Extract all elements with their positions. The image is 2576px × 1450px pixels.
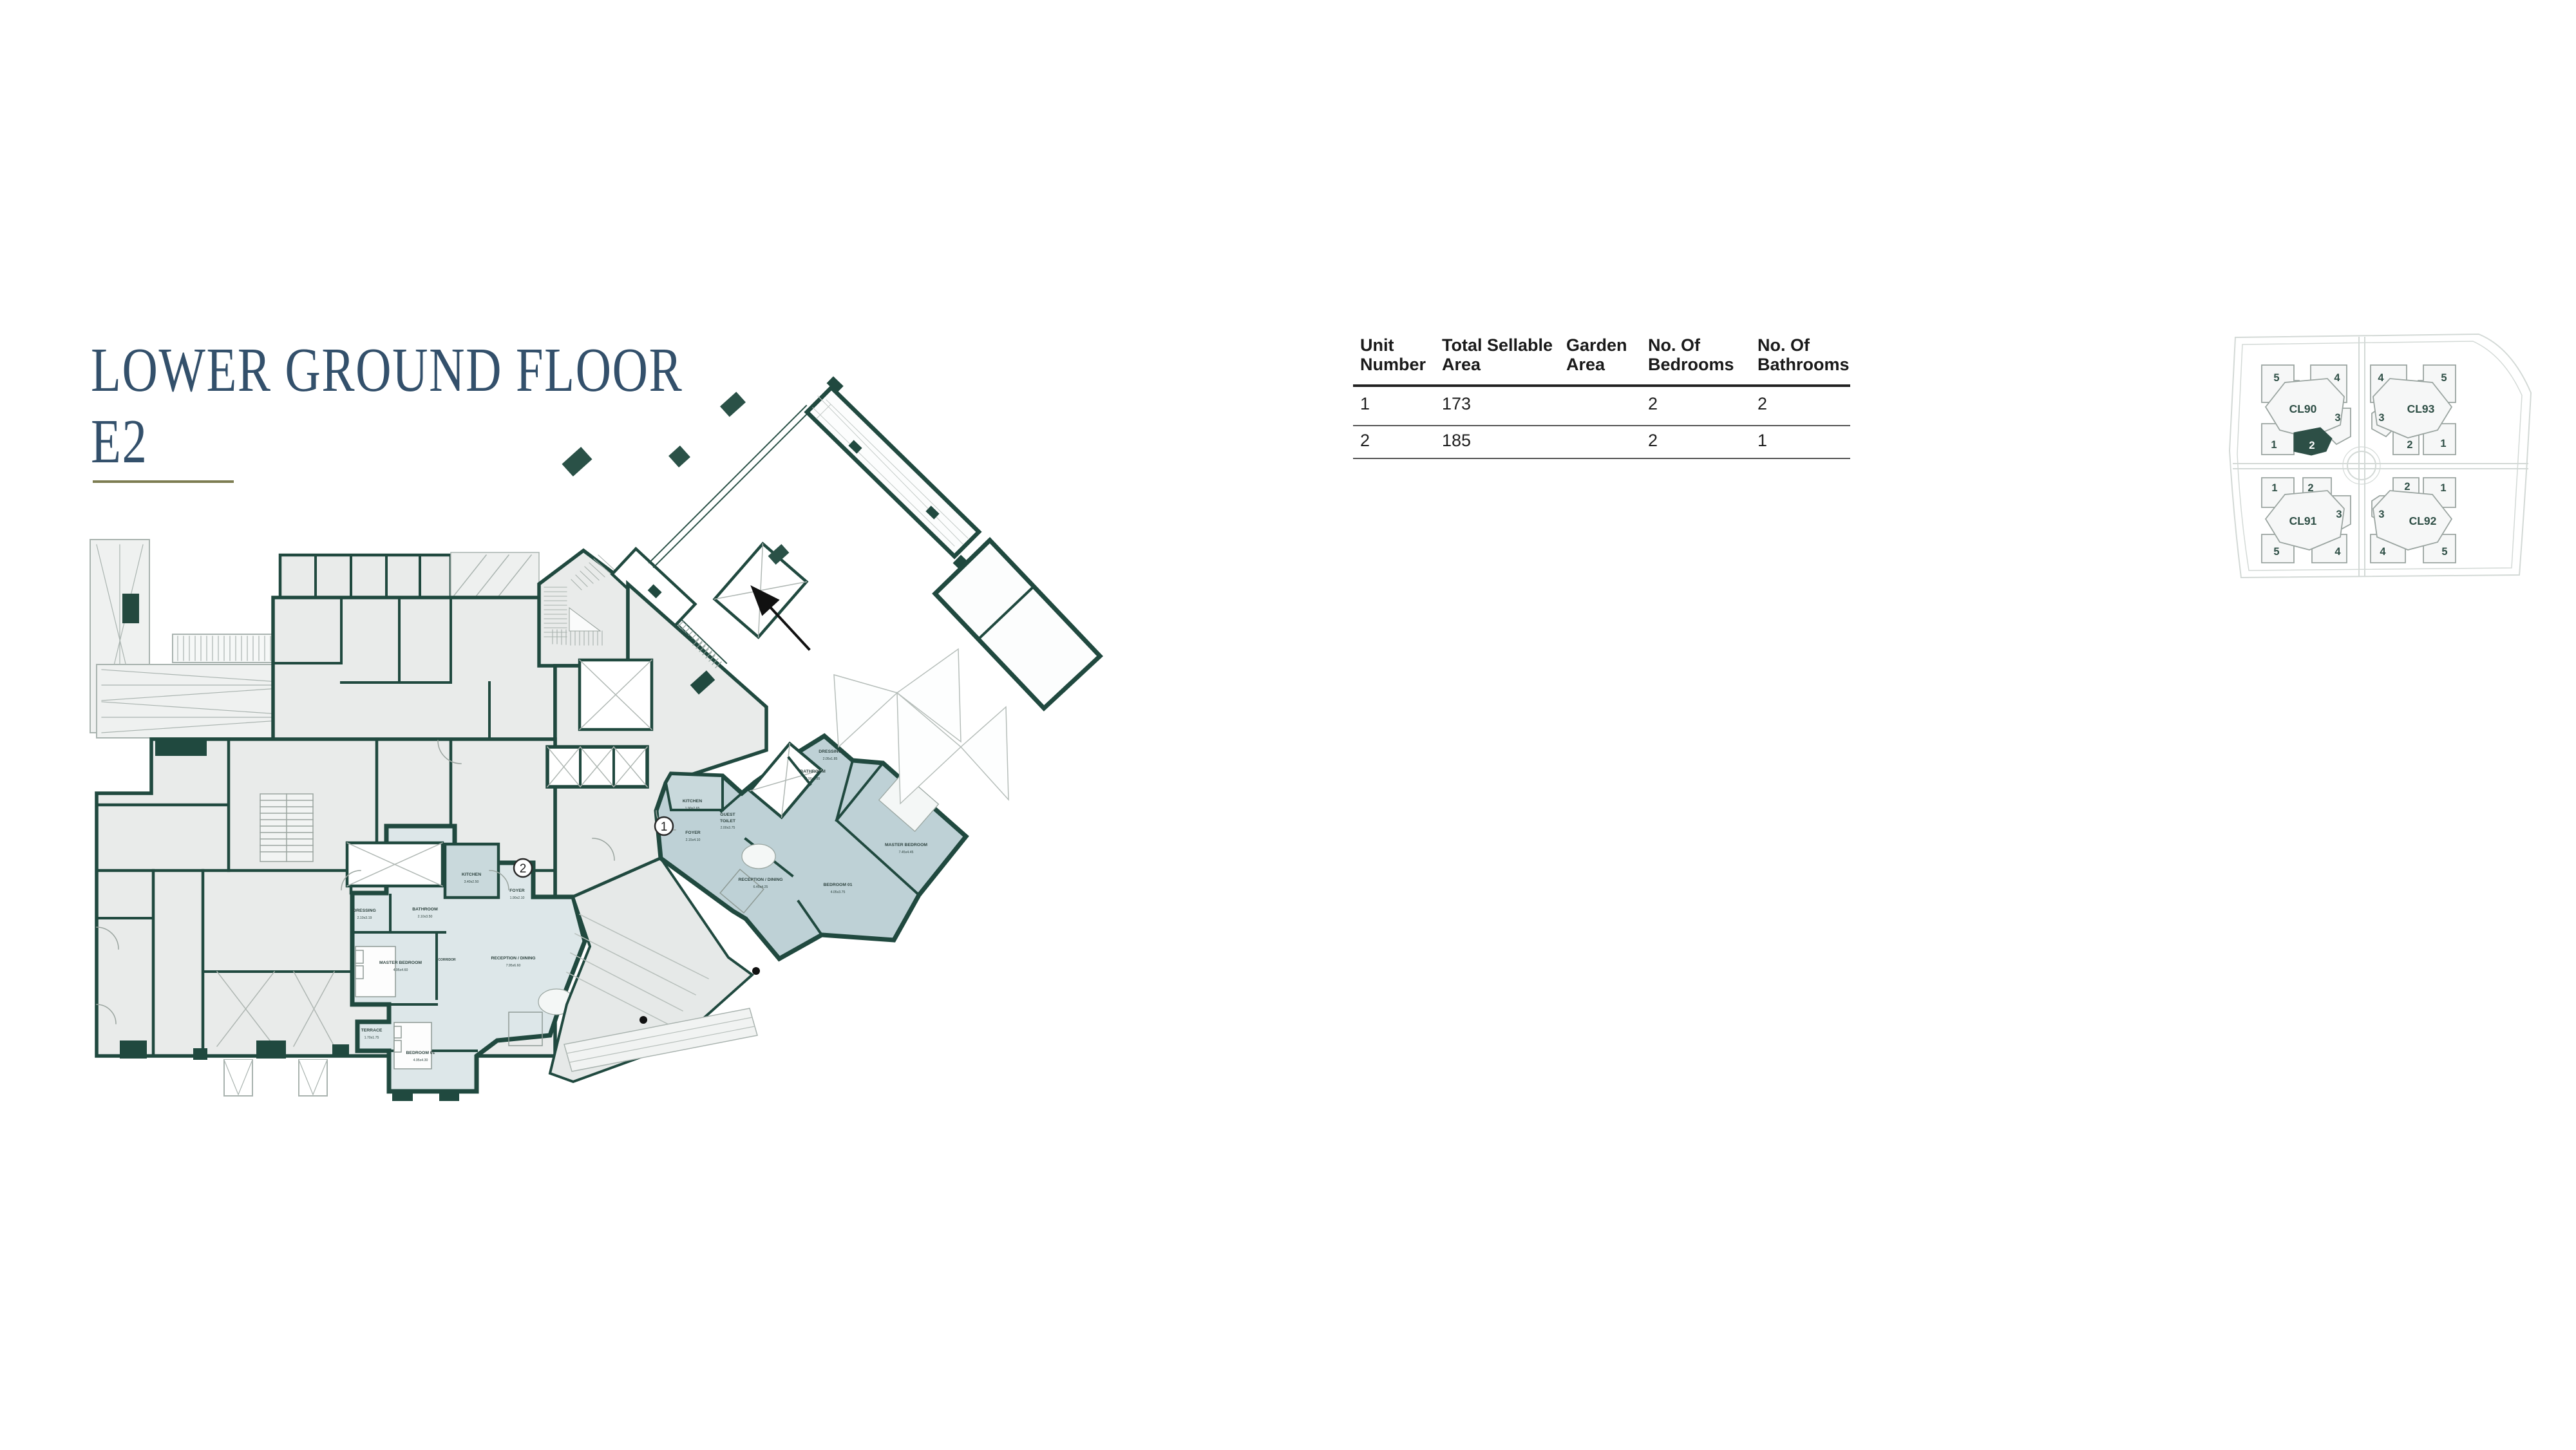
svg-text:5: 5 [2273, 372, 2279, 384]
svg-text:1: 1 [2271, 482, 2277, 494]
svg-text:TOILET: TOILET [720, 819, 736, 824]
svg-text:5: 5 [2273, 546, 2279, 558]
svg-text:FOYER: FOYER [509, 889, 525, 893]
svg-text:2.10x3.50: 2.10x3.50 [418, 915, 433, 919]
svg-text:2.15x4.10: 2.15x4.10 [686, 838, 701, 842]
svg-text:FOYER: FOYER [685, 831, 701, 835]
svg-text:CL92: CL92 [2409, 514, 2437, 527]
svg-text:4.95x4.30: 4.95x4.30 [413, 1059, 428, 1062]
svg-text:MASTER BEDROOM: MASTER BEDROOM [885, 843, 927, 847]
svg-text:4: 4 [2380, 546, 2386, 558]
svg-text:CORRIDOR: CORRIDOR [438, 958, 456, 962]
svg-text:RECEPTION / DINING: RECEPTION / DINING [491, 956, 535, 961]
svg-text:GUEST: GUEST [720, 813, 735, 817]
svg-text:CL93: CL93 [2407, 402, 2435, 415]
svg-text:4: 4 [2334, 372, 2340, 384]
svg-text:DRESSING: DRESSING [819, 749, 842, 754]
svg-text:6.45x4.25: 6.45x4.25 [753, 885, 768, 889]
svg-text:1: 1 [2440, 482, 2446, 494]
svg-text:3: 3 [2336, 509, 2342, 520]
svg-text:7.45x4.45: 7.45x4.45 [899, 851, 914, 854]
svg-text:DRESSING: DRESSING [353, 909, 376, 913]
svg-text:1: 1 [2440, 438, 2446, 449]
svg-text:4: 4 [2378, 372, 2384, 384]
svg-text:BEDROOM 01: BEDROOM 01 [406, 1051, 435, 1055]
svg-text:TERRACE: TERRACE [361, 1028, 383, 1033]
svg-text:1.90x2.10: 1.90x2.10 [510, 896, 525, 900]
svg-text:CL91: CL91 [2289, 514, 2317, 527]
svg-text:KITCHEN: KITCHEN [462, 872, 481, 877]
svg-text:BATHROOM: BATHROOM [412, 907, 438, 912]
svg-text:3: 3 [2378, 412, 2384, 424]
svg-text:2.90x1.85: 2.90x1.85 [806, 777, 820, 781]
svg-text:RECEPTION / DINING: RECEPTION / DINING [738, 878, 782, 882]
svg-text:1: 1 [661, 820, 668, 834]
svg-text:2.00x3.75: 2.00x3.75 [721, 826, 735, 830]
svg-text:3: 3 [2378, 509, 2384, 520]
svg-text:BEDROOM 01: BEDROOM 01 [824, 883, 853, 887]
svg-text:1: 1 [2271, 439, 2277, 451]
svg-text:2.05x1.85: 2.05x1.85 [823, 757, 838, 761]
svg-text:2.10x3.19: 2.10x3.19 [357, 916, 372, 920]
svg-text:2: 2 [2404, 481, 2410, 493]
svg-text:CL90: CL90 [2289, 402, 2317, 415]
svg-text:5: 5 [2441, 546, 2447, 558]
svg-text:1.70x1.75: 1.70x1.75 [365, 1036, 379, 1040]
svg-text:7.95x6.60: 7.95x6.60 [506, 964, 521, 968]
svg-text:3.40x2.50: 3.40x2.50 [464, 880, 479, 884]
svg-text:2: 2 [2307, 482, 2313, 494]
svg-text:5: 5 [2441, 372, 2447, 384]
svg-text:1.90x2.65: 1.90x2.65 [685, 807, 700, 811]
svg-text:4.95x4.60: 4.95x4.60 [393, 968, 408, 972]
svg-text:3: 3 [2334, 412, 2340, 424]
svg-text:2: 2 [2407, 439, 2412, 451]
svg-text:2: 2 [2309, 440, 2315, 451]
svg-text:BATHROOM: BATHROOM [800, 769, 826, 774]
svg-text:2: 2 [520, 862, 527, 876]
svg-text:KITCHEN: KITCHEN [683, 799, 702, 804]
svg-text:MASTER BEDROOM: MASTER BEDROOM [379, 961, 422, 965]
svg-text:4.05x3.75: 4.05x3.75 [831, 890, 846, 894]
svg-text:4: 4 [2334, 546, 2341, 558]
